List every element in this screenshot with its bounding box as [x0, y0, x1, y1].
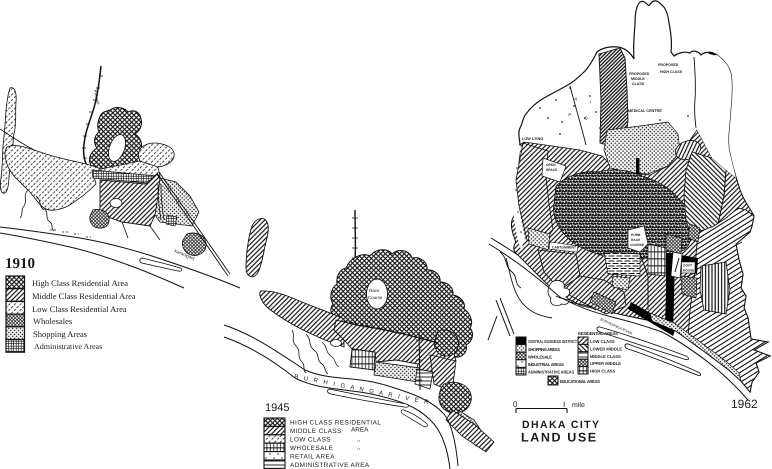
svg-text:1945: 1945 — [265, 402, 289, 414]
svg-text:Low Class Residential Area: Low Class Residential Area — [32, 304, 127, 314]
svg-text:HIGH CLASS: HIGH CLASS — [590, 369, 616, 374]
svg-text:Middle Class Residential Area: Middle Class Residential Area — [32, 291, 136, 301]
svg-text:PROPOSED: PROPOSED — [658, 63, 679, 67]
svg-text:mile: mile — [572, 401, 585, 409]
svg-text:High Class Residential Area: High Class Residential Area — [32, 278, 128, 288]
svg-text:WHOLESALE: WHOLESALE — [528, 355, 552, 360]
svg-text:1962: 1962 — [731, 397, 758, 411]
svg-text:DHAKA CITY: DHAKA CITY — [522, 419, 600, 431]
svg-text:ADMINISTRATIVE AREAS: ADMINISTRATIVE AREAS — [528, 370, 574, 375]
svg-text:MIDDLE: MIDDLE — [631, 77, 645, 81]
svg-text:MEDICAL CENTRE: MEDICAL CENTRE — [628, 109, 662, 113]
svg-text:COURSE: COURSE — [630, 243, 645, 247]
svg-text:,,: ,, — [357, 445, 361, 451]
svg-text:CENTRAL BUSINESS DISTRICT: CENTRAL BUSINESS DISTRICT — [528, 339, 577, 344]
svg-text:ADMINISTRATIVE AREA: ADMINISTRATIVE AREA — [290, 462, 370, 469]
svg-text:Course: Course — [368, 295, 383, 300]
svg-text:SHOPPING AREAS: SHOPPING AREAS — [528, 347, 560, 352]
svg-text:CANTONMENT: CANTONMENT — [552, 246, 577, 250]
svg-text:PURB: PURB — [631, 233, 641, 237]
svg-text:MIDDLE CLASS: MIDDLE CLASS — [290, 428, 342, 435]
svg-text:AREA: AREA — [351, 427, 369, 434]
svg-text:UPPER MIDDLE: UPPER MIDDLE — [590, 361, 621, 366]
svg-text:WHOLESALE: WHOLESALE — [290, 445, 333, 452]
svg-text:MIDDLE CLASS: MIDDLE CLASS — [590, 354, 621, 359]
svg-text:Administrative Areas: Administrative Areas — [34, 342, 102, 351]
svg-text:LOWER MIDDLE: LOWER MIDDLE — [590, 346, 622, 351]
svg-text:RETAIL AREA: RETAIL AREA — [290, 453, 335, 460]
svg-text:HOUSE: HOUSE — [683, 269, 694, 273]
svg-text:0: 0 — [513, 400, 518, 409]
svg-text:I: I — [563, 400, 565, 409]
svg-text:RESIDENTIAL AREAS: RESIDENTIAL AREAS — [578, 331, 618, 336]
svg-text:RACE: RACE — [631, 238, 641, 242]
svg-text:HIGH CLASS RESIDENTIAL: HIGH CLASS RESIDENTIAL — [290, 420, 381, 427]
svg-text:OPEN: OPEN — [546, 163, 556, 167]
svg-text:Race: Race — [369, 288, 380, 293]
svg-text:EDUCATIONAL AREAS: EDUCATIONAL AREAS — [560, 379, 600, 384]
svg-text:Railroad: Railroad — [93, 89, 101, 105]
svg-text:LAND USE: LAND USE — [521, 431, 598, 445]
svg-text:GOVT: GOVT — [683, 264, 692, 268]
svg-text:LOW CLASS: LOW CLASS — [590, 339, 615, 344]
svg-text:LOW LYING: LOW LYING — [522, 137, 543, 141]
svg-text:Wholesales: Wholesales — [33, 316, 72, 326]
svg-text:INDUSTRIAL AREAS: INDUSTRIAL AREAS — [528, 362, 564, 367]
svg-text:HIGH CLASS: HIGH CLASS — [660, 70, 683, 74]
svg-text:SPACE: SPACE — [546, 168, 558, 172]
svg-text:CLASS: CLASS — [632, 82, 645, 86]
svg-text:PROPOSED: PROPOSED — [629, 72, 650, 76]
svg-text:Shopping Areas: Shopping Areas — [33, 329, 87, 339]
svg-text:LOW CLASS: LOW CLASS — [290, 437, 331, 444]
svg-text:,,: ,, — [357, 437, 361, 443]
svg-text:1910: 1910 — [5, 256, 35, 272]
